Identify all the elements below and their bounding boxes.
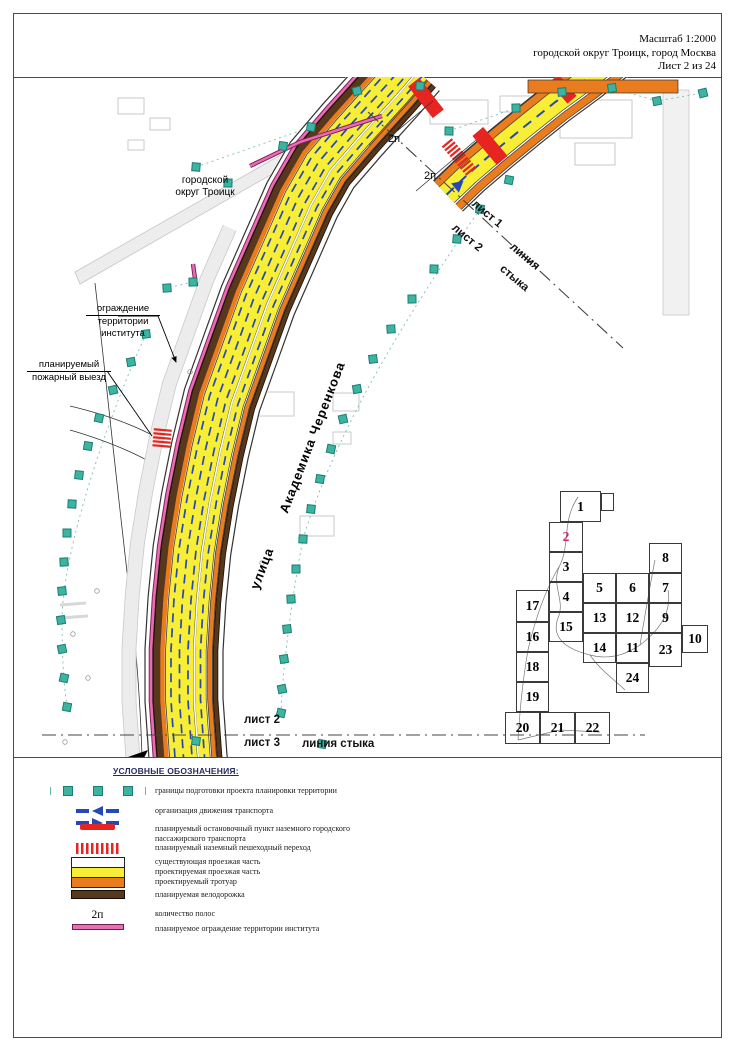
crosswalk-symbol	[45, 843, 150, 854]
fence-callout-line2: территории	[86, 316, 160, 328]
boundary-marker	[60, 558, 68, 566]
sheet-index-cell: 8	[649, 543, 682, 573]
sheet-index-cell: 13	[583, 603, 616, 633]
boundary-marker	[299, 535, 307, 543]
bike-symbol	[45, 890, 150, 899]
boundary-marker	[315, 474, 324, 483]
sheet-index-cell: 5	[583, 573, 616, 603]
fence-symbol	[45, 924, 150, 930]
sheet-index-cell: 15	[549, 612, 583, 642]
legend-item-label: проектируемый тротуар	[155, 877, 237, 887]
boundary-marker	[416, 82, 425, 91]
boundary-marker	[504, 175, 513, 184]
sheet-index-notch	[601, 493, 614, 511]
map-location: городской округ Троицк, город Москва	[533, 47, 716, 61]
boundary-marker	[58, 587, 67, 596]
fire-exit-callout: планируемый пожарный выезд	[27, 359, 111, 384]
stop-symbol	[45, 824, 150, 830]
sheet-index-cell: 21	[540, 712, 575, 744]
boundary-marker	[94, 413, 103, 422]
sheet-index-cell: 24	[616, 663, 649, 693]
boundary-marker	[352, 384, 361, 393]
boundary-marker	[277, 684, 286, 693]
sheet-index-cell: 19	[516, 682, 549, 712]
boundary-marker	[68, 500, 76, 508]
legend-item-label: границы подготовки проекта планировки те…	[155, 786, 337, 796]
boundary-marker	[192, 737, 201, 746]
fence-callout-line3: института	[86, 328, 160, 340]
sheet-index-cell: 18	[516, 652, 549, 682]
boundary-marker	[607, 83, 616, 92]
sheet-index-cell: 17	[516, 590, 549, 622]
sidewalk-symbol	[45, 877, 150, 888]
sheet-index-cell: 1	[560, 491, 601, 522]
boundary-marker	[75, 471, 84, 480]
legend-item-label: планируемая велодорожка	[155, 890, 245, 900]
sheet-index-cell: 20	[505, 712, 540, 744]
boundary-marker	[292, 565, 300, 573]
boundary-marker	[83, 441, 92, 450]
plan-sheet-page: Масштаб 1:2000 городской округ Троицк, г…	[0, 0, 734, 1050]
boundary-marker	[558, 88, 567, 97]
legend-item-label: существующая проезжая часть	[155, 857, 260, 867]
lanes-symbol: 2п	[45, 909, 150, 921]
boundary-marker	[57, 644, 66, 653]
title-block: Масштаб 1:2000 городской округ Троицк, г…	[533, 33, 716, 74]
fence-callout-line1: ограждение	[86, 303, 160, 316]
boundary-marker	[326, 444, 335, 453]
sheet-index-cell: 11	[616, 633, 649, 663]
fire-exit-line1: планируемый	[27, 359, 111, 372]
boundary-marker	[192, 163, 201, 172]
sheet-number: Лист 2 из 24	[533, 60, 716, 74]
seam-bottom-sheet3-label: лист 3	[244, 737, 280, 749]
sheet-index: 123456789101112131415161718192021222324	[500, 485, 715, 750]
boundary-marker	[352, 86, 362, 96]
legend-item-label: проектируемая проезжая часть	[155, 867, 260, 877]
sheet-index-cell: 16	[516, 622, 549, 652]
boundary-marker	[63, 529, 71, 537]
boundary-marker	[306, 122, 315, 131]
boundary-marker	[108, 385, 118, 395]
boundary-marker	[62, 702, 71, 711]
legend-item-label: организация движения транспорта	[155, 806, 273, 816]
boundary-marker	[126, 357, 135, 366]
sheet-index-cell: 10	[682, 625, 708, 653]
boundary-marker	[278, 141, 287, 150]
fence-callout: ограждение территории института	[86, 303, 160, 340]
sheet-index-cell: 3	[549, 552, 583, 582]
seam-bottom-sheet2-label: лист 2	[244, 714, 280, 726]
sheet-index-cell: 6	[616, 573, 649, 603]
boundary-marker	[307, 505, 316, 514]
boundary-marker	[189, 278, 197, 286]
boundary-marker	[56, 615, 65, 624]
legend-item-label: планируемый остановочный пункт наземного…	[155, 824, 350, 843]
legend-item-label: планируемое ограждение территории инстит…	[155, 924, 319, 934]
map-bottom-divider	[13, 757, 721, 758]
boundary-marker	[512, 104, 520, 112]
sheet-index-cell: 12	[616, 603, 649, 633]
sheet-index-cell: 7	[649, 573, 682, 603]
map-scale: Масштаб 1:2000	[533, 33, 716, 47]
boundary-marker	[387, 325, 396, 334]
boundary-marker	[59, 673, 69, 683]
sheet-index-cell: 4	[549, 582, 583, 612]
boundary-marker	[163, 284, 172, 293]
legend-title: УСЛОВНЫЕ ОБОЗНАЧЕНИЯ:	[113, 766, 239, 776]
boundary-marker	[652, 96, 661, 105]
seam-bottom-label: линия стыка	[302, 738, 374, 750]
boundary-symbol	[45, 786, 150, 796]
fire-exit-line2: пожарный выезд	[27, 372, 111, 384]
boundary-marker	[445, 127, 453, 135]
sheet-index-cell: 14	[583, 633, 616, 663]
boundary-marker	[408, 295, 416, 303]
boundary-marker	[279, 654, 288, 663]
boundary-marker	[338, 414, 348, 424]
district-label: городской округ Троицк	[160, 175, 250, 198]
lane-count-label: 2п	[424, 170, 436, 182]
legend-item-label: планируемый наземный пешеходный переход	[155, 843, 311, 853]
sheet-index-cell: 22	[575, 712, 610, 744]
lane-count-label: 2п	[388, 133, 400, 145]
sheet-index-cell: 23	[649, 633, 682, 667]
legend: УСЛОВНЫЕ ОБОЗНАЧЕНИЯ: границы подготовки…	[13, 760, 693, 1030]
boundary-marker	[698, 88, 708, 98]
sheet-index-cell: 9	[649, 603, 682, 633]
boundary-marker	[430, 265, 438, 273]
sheet-index-cell-current: 2	[549, 522, 583, 552]
boundary-marker	[369, 355, 378, 364]
legend-item-label: количество полос	[155, 909, 215, 919]
boundary-marker	[287, 595, 295, 603]
top-sidewalk-band	[528, 80, 678, 93]
boundary-marker	[283, 625, 292, 634]
